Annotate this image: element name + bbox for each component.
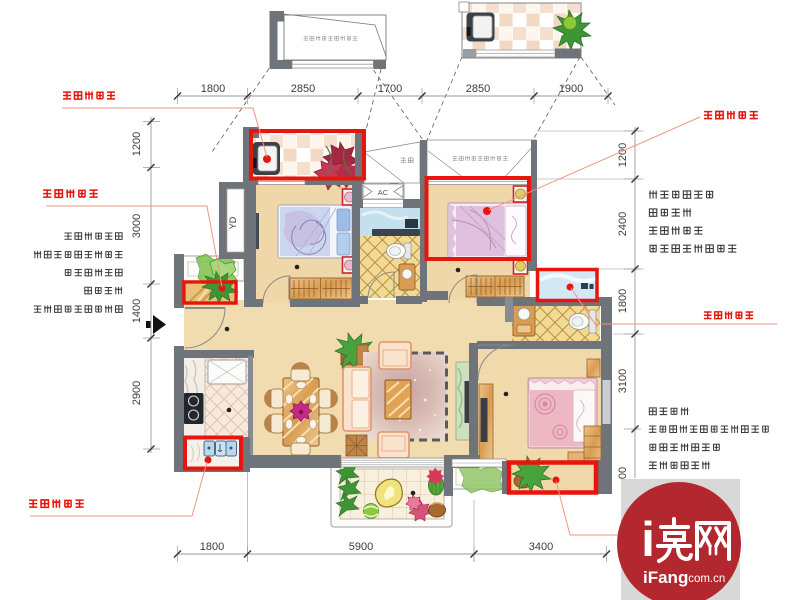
svg-text:AC: AC — [378, 188, 389, 197]
svg-text:1200: 1200 — [131, 132, 143, 156]
svg-text:1900: 1900 — [559, 83, 583, 95]
svg-text:1700: 1700 — [378, 83, 402, 95]
svg-text:3000: 3000 — [131, 214, 143, 238]
svg-text:3400: 3400 — [529, 541, 553, 553]
svg-text:2900: 2900 — [131, 381, 143, 405]
svg-text:00: 00 — [617, 467, 629, 479]
svg-text:3100: 3100 — [617, 369, 629, 393]
svg-text:2850: 2850 — [466, 83, 490, 95]
svg-text:5900: 5900 — [349, 541, 373, 553]
svg-text:1800: 1800 — [200, 541, 224, 553]
svg-text:iFang: iFang — [643, 568, 688, 587]
svg-text:1200: 1200 — [617, 143, 629, 167]
svg-text:2850: 2850 — [291, 83, 315, 95]
svg-text:.com.cn: .com.cn — [685, 573, 725, 585]
svg-text:2400: 2400 — [617, 212, 629, 236]
svg-text:YD: YD — [228, 216, 238, 229]
svg-text:1400: 1400 — [131, 299, 143, 323]
svg-text:1800: 1800 — [201, 83, 225, 95]
svg-text:i: i — [641, 513, 655, 567]
svg-text:1800: 1800 — [617, 289, 629, 313]
